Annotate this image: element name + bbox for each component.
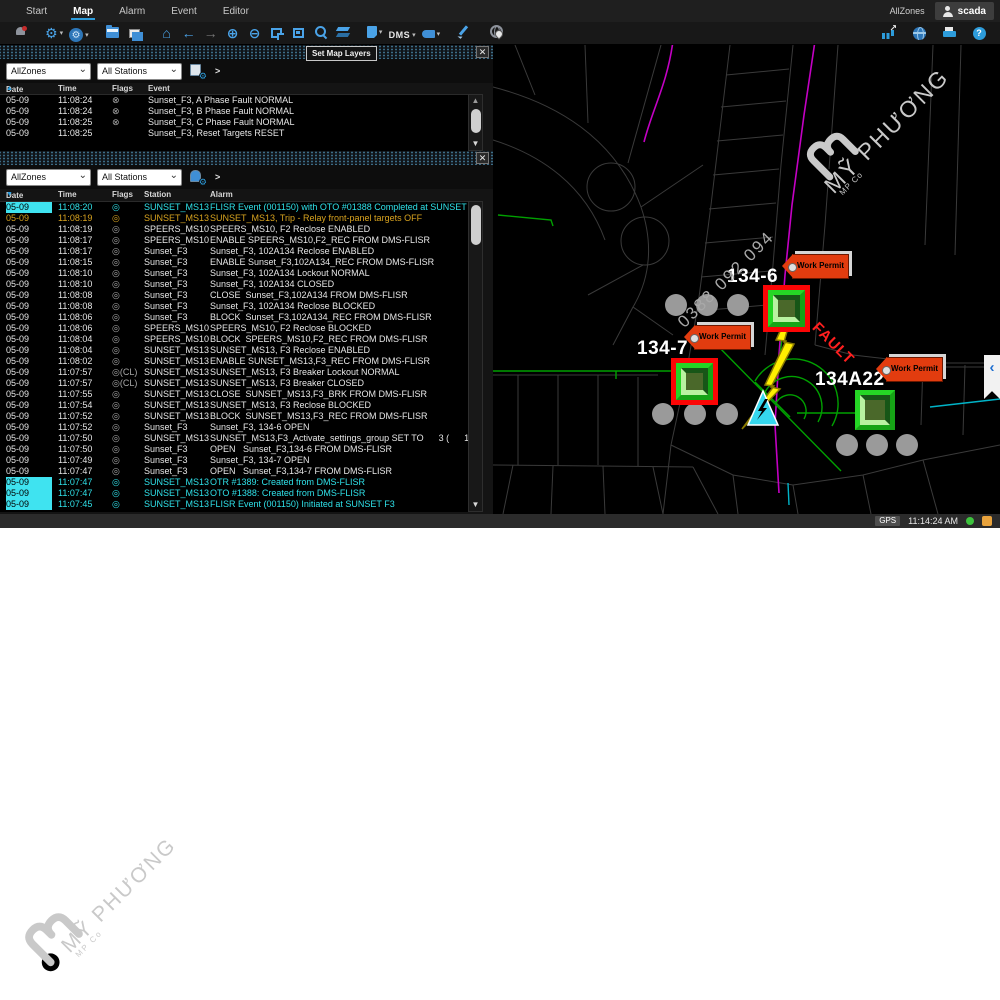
tab-start[interactable]: Start (26, 2, 47, 20)
search-icon[interactable] (313, 23, 329, 41)
junction-node[interactable] (866, 434, 888, 456)
event-row[interactable]: 05-0911:08:25Sunset_F3, Reset Targets RE… (0, 128, 468, 139)
work-permit-tag[interactable]: Work Permit (694, 325, 751, 350)
alarm-row[interactable]: 05-0911:07:50◎Sunset_F3OPEN Sunset_F3,13… (0, 444, 468, 455)
tab-map[interactable]: Map (73, 2, 93, 20)
alarm-status-orange-icon[interactable] (982, 516, 992, 526)
event-list: 05-0911:08:24⊗Sunset_F3, A Phase Fault N… (0, 94, 468, 151)
alarm-expand-button[interactable]: > (215, 172, 220, 182)
alarm-row[interactable]: 05-0911:08:20◎SUNSET_MS13FLISR Event (00… (0, 202, 468, 213)
alarm-list: 05-0911:08:20◎SUNSET_MS13FLISR Event (00… (0, 201, 468, 512)
mp-logo-icon (10, 896, 95, 981)
alarm-row[interactable]: 05-0911:07:52◎Sunset_F3Sunset_F3, 134-6 … (0, 422, 468, 433)
sketch-pencil-icon[interactable] (456, 23, 472, 41)
alarm-row[interactable]: 05-0911:07:47◎Sunset_F3OPEN Sunset_F3,13… (0, 466, 468, 477)
alarm-scrollbar[interactable]: ▼ (468, 201, 483, 512)
username: scada (958, 6, 986, 17)
comm-status-green-icon (966, 517, 974, 525)
help-icon[interactable]: ? (971, 24, 987, 42)
tab-editor[interactable]: Editor (223, 2, 249, 20)
label-tag-icon[interactable]: ▾ (422, 25, 441, 43)
alarm-row[interactable]: 05-0911:08:15◎Sunset_F3ENABLE Sunset_F3,… (0, 257, 468, 268)
junction-node[interactable] (684, 403, 706, 425)
junction-node[interactable] (896, 434, 918, 456)
junction-node[interactable] (665, 294, 687, 316)
tab-event[interactable]: Event (171, 2, 197, 20)
scroll-down-icon[interactable]: ▼ (469, 138, 482, 150)
zoom-fit-icon[interactable] (291, 24, 307, 42)
alarm-row[interactable]: 05-0911:07:47◎SUNSET_MS13OTR #1389: Crea… (0, 477, 468, 488)
clock: 11:14:24 AM (908, 516, 958, 526)
event-scrollbar[interactable]: ▲ ▼ (468, 94, 483, 151)
junction-node[interactable] (836, 434, 858, 456)
open-map-icon[interactable] (105, 23, 121, 41)
close-icon[interactable]: ✕ (476, 46, 489, 58)
zoom-in-icon[interactable]: ⊕ (225, 24, 241, 42)
event-view-settings-icon[interactable]: ⚙ (190, 64, 205, 78)
active-zone-label: AllZones (890, 6, 925, 16)
gps-status-badge: GPS (875, 516, 900, 526)
dms-menu[interactable]: DMS▾ (389, 26, 416, 44)
home-icon[interactable]: ⌂ (159, 24, 175, 42)
alarm-row[interactable]: 05-0911:08:08◎Sunset_F3CLOSE Sunset_F3,1… (0, 290, 468, 301)
chevron-down-icon: ▾ (85, 31, 89, 39)
statusbar: GPS 11:14:24 AM (0, 514, 1000, 528)
menubar: Start Map Alarm Event Editor AllZones sc… (0, 0, 1000, 22)
scroll-down-icon[interactable]: ▼ (469, 499, 482, 511)
chevron-down-icon: ▾ (379, 28, 383, 36)
chevron-down-icon: ▾ (60, 29, 64, 37)
user-menu[interactable]: scada (935, 2, 994, 20)
event-expand-button[interactable]: > (215, 66, 220, 76)
switch-134A22[interactable] (855, 390, 895, 430)
alarm-row[interactable]: 05-0911:08:06◎Sunset_F3BLOCK Sunset_F3,1… (0, 312, 468, 323)
alarm-panel-titlebar[interactable]: ✕ (0, 151, 493, 165)
watermark-brand-sub-bottom: MP Co (74, 928, 105, 959)
event-zone-select[interactable]: AllZones (6, 63, 91, 80)
alarm-row[interactable]: 05-0911:08:19◎SPEERS_MS10SPEERS_MS10, F2… (0, 224, 468, 235)
alarm-row[interactable]: 05-0911:08:08◎Sunset_F3Sunset_F3, 102A13… (0, 301, 468, 312)
switch-134-6[interactable] (763, 285, 810, 332)
device-label-134-7: 134-7 (637, 338, 688, 360)
event-list-header: Date ▲ Time Flags Event (0, 83, 493, 94)
switch-134-7[interactable] (671, 358, 718, 405)
alarm-row[interactable]: 05-0911:08:19◎SUNSET_MS13SUNSET_MS13, Tr… (0, 213, 468, 224)
work-permit-tag[interactable]: Work Permit (886, 357, 943, 382)
scroll-thumb[interactable] (471, 109, 481, 133)
alarm-row[interactable]: 05-0911:08:02◎SUNSET_MS13ENABLE SUNSET_M… (0, 356, 468, 367)
trend-chart-icon[interactable] (881, 24, 897, 42)
map-layers-icon[interactable] (335, 23, 351, 41)
back-icon[interactable]: ← (181, 24, 197, 42)
alarm-row[interactable]: 05-0911:08:10◎Sunset_F3Sunset_F3, 102A13… (0, 268, 468, 279)
zoom-out-icon[interactable]: ⊖ (247, 24, 263, 42)
scroll-up-icon[interactable]: ▲ (469, 95, 482, 107)
work-permit-tag[interactable]: Work Permit (792, 254, 849, 279)
alarm-settings-icon[interactable]: ⚙ (190, 170, 205, 184)
tooltip-set-map-layers: Set Map Layers (306, 46, 377, 61)
copy-window-icon[interactable] (127, 24, 143, 42)
watermark-brand-bottom: MỸ PHƯƠNG (57, 834, 181, 958)
user-icon (943, 6, 953, 16)
toolbar-icons: ⚙▾⚙▾⌂←→⊕⊖▾DMS▾▾ (10, 22, 507, 44)
alarm-row[interactable]: 05-0911:07:52◎SUNSET_MS13BLOCK SUNSET_MS… (0, 411, 468, 422)
alarm-station-select[interactable]: All Stations (97, 169, 182, 186)
alarm-row[interactable]: 05-0911:07:54◎SUNSET_MS13SUNSET_MS13, F3… (0, 400, 468, 411)
zoom-window-icon[interactable] (269, 24, 285, 42)
map-toolbar: ⚙▾⚙▾⌂←→⊕⊖▾DMS▾▾ ? (0, 22, 1000, 45)
alarm-row[interactable]: 05-0911:07:55◎SUNSET_MS13CLOSE SUNSET_MS… (0, 389, 468, 400)
map-viewport[interactable]: 134-6 134-7 134A22 FAULT Work Permit Wor… (493, 45, 1000, 514)
scroll-thumb[interactable] (471, 205, 481, 245)
map-settings-icon[interactable]: ⚙▾ (69, 26, 89, 44)
close-icon[interactable]: ✕ (476, 152, 489, 164)
junction-node[interactable] (696, 294, 718, 316)
annotation-tag-icon[interactable]: ▾ (367, 23, 383, 41)
tab-alarm[interactable]: Alarm (119, 2, 145, 20)
print-icon[interactable] (941, 24, 957, 42)
junction-node[interactable] (652, 403, 674, 425)
alarm-row[interactable]: 05-0911:08:04◎SUNSET_MS13SUNSET_MS13, F3… (0, 345, 468, 356)
settings-gear-icon[interactable]: ⚙▾ (45, 24, 63, 42)
alarm-row[interactable]: 05-0911:08:17◎SPEERS_MS10ENABLE SPEERS_M… (0, 235, 468, 246)
forward-icon[interactable]: → (203, 24, 219, 42)
scada-application-window: Start Map Alarm Event Editor AllZones sc… (0, 0, 1000, 528)
event-panel-titlebar[interactable]: ✕ (0, 45, 493, 59)
event-row[interactable]: 05-0911:08:25⊗Sunset_F3, C Phase Fault N… (0, 117, 468, 128)
alarm-row[interactable]: 05-0911:07:45◎SUNSET_MS13FLISR Event (00… (0, 499, 468, 510)
alarm-filter-row: AllZones All Stations ⚙ > (0, 165, 493, 189)
locate-globe-icon[interactable] (488, 22, 504, 40)
event-row[interactable]: 05-0911:08:24⊗Sunset_F3, B Phase Fault N… (0, 106, 468, 117)
chevron-down-icon: ▾ (412, 31, 416, 39)
alarm-row[interactable]: 05-0911:07:47◎SUNSET_MS13OTO #1388: Crea… (0, 488, 468, 499)
watermark-logo-bottom (10, 896, 98, 984)
device-label-134A22: 134A22 (815, 369, 885, 391)
alarm-row[interactable]: 05-0911:08:04◎SPEERS_MS10BLOCK SPEERS_MS… (0, 334, 468, 345)
alarm-list-header: Date ▼ Time Flags Station Alarm (0, 189, 493, 201)
junction-node[interactable] (716, 403, 738, 425)
web-globe-icon[interactable] (911, 24, 927, 42)
chevron-down-icon: ▾ (437, 30, 441, 38)
alarm-row[interactable]: 05-0911:07:49◎Sunset_F3Sunset_F3, 134-7 … (0, 455, 468, 466)
junction-node[interactable] (727, 294, 749, 316)
alarm-row[interactable]: 05-0911:07:57◎(CL)SUNSET_MS13SUNSET_MS13… (0, 367, 468, 378)
event-filter-row: AllZones All Stations ⚙ > (0, 59, 493, 83)
alarm-row[interactable]: 05-0911:07:50◎SUNSET_MS13SUNSET_MS13,F3_… (0, 433, 468, 444)
event-station-select[interactable]: All Stations (97, 63, 182, 80)
alarm-row[interactable]: 05-0911:08:06◎SPEERS_MS10SPEERS_MS10, F2… (0, 323, 468, 334)
event-row[interactable]: 05-0911:08:24⊗Sunset_F3, A Phase Fault N… (0, 95, 468, 106)
alarm-row[interactable]: 05-0911:08:10◎Sunset_F3Sunset_F3, 102A13… (0, 279, 468, 290)
alarm-bell-icon[interactable] (13, 23, 29, 41)
alarm-zone-select[interactable]: AllZones (6, 169, 91, 186)
alarm-row[interactable]: 05-0911:07:57◎(CL)SUNSET_MS13SUNSET_MS13… (0, 378, 468, 389)
alarm-row[interactable]: 05-0911:08:17◎Sunset_F3Sunset_F3, 102A13… (0, 246, 468, 257)
toolbar-right-icons: ? (878, 24, 1000, 42)
